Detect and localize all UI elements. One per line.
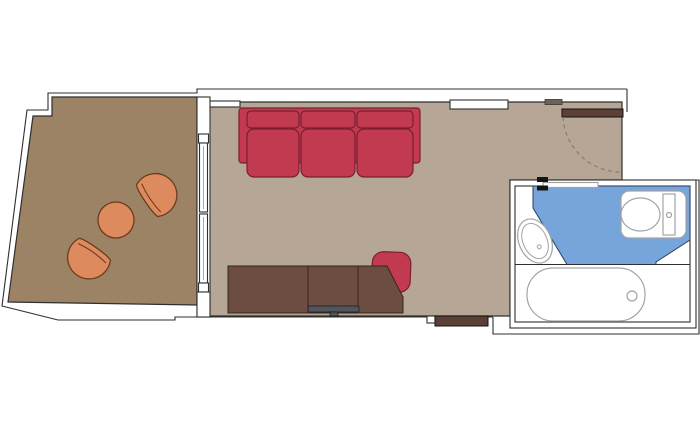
door-pivot-hardware (537, 186, 548, 191)
sofa-seat-cushion (247, 129, 299, 177)
tv-screen (308, 306, 359, 312)
wall-notch-bottom (427, 316, 435, 323)
floorplan-page (0, 0, 700, 433)
door-frame-piece (545, 100, 562, 105)
sofa-back-cushion (247, 111, 299, 128)
glass-door-cap-top (199, 134, 209, 143)
bathtub-drain (627, 291, 637, 301)
glass-door-cap-bottom (199, 283, 209, 292)
sofa-seat-cushion (357, 129, 413, 177)
bathroom (510, 177, 696, 328)
balcony-side-table (98, 202, 134, 238)
sofa-bed (239, 108, 420, 177)
floorplan-canvas (0, 0, 700, 433)
bathtub (527, 268, 645, 321)
bathroom-door-leaf (543, 183, 598, 188)
wall-recess-left (206, 101, 240, 107)
wall-insert (435, 316, 488, 326)
sofa-seat-cushion (301, 129, 355, 177)
sofa-back-cushion (357, 111, 413, 128)
sliding-glass-door (197, 97, 210, 317)
toilet-flush-button (667, 213, 672, 218)
wall-recess-right (450, 100, 508, 109)
wall-stub-below-door (197, 292, 210, 317)
sofa-back-cushion (301, 111, 355, 128)
door-pivot-hardware (537, 177, 548, 182)
toilet-bowl (621, 198, 660, 231)
entry-door-leaf (562, 109, 623, 117)
toilet (621, 191, 686, 238)
tv-mount (330, 312, 338, 316)
